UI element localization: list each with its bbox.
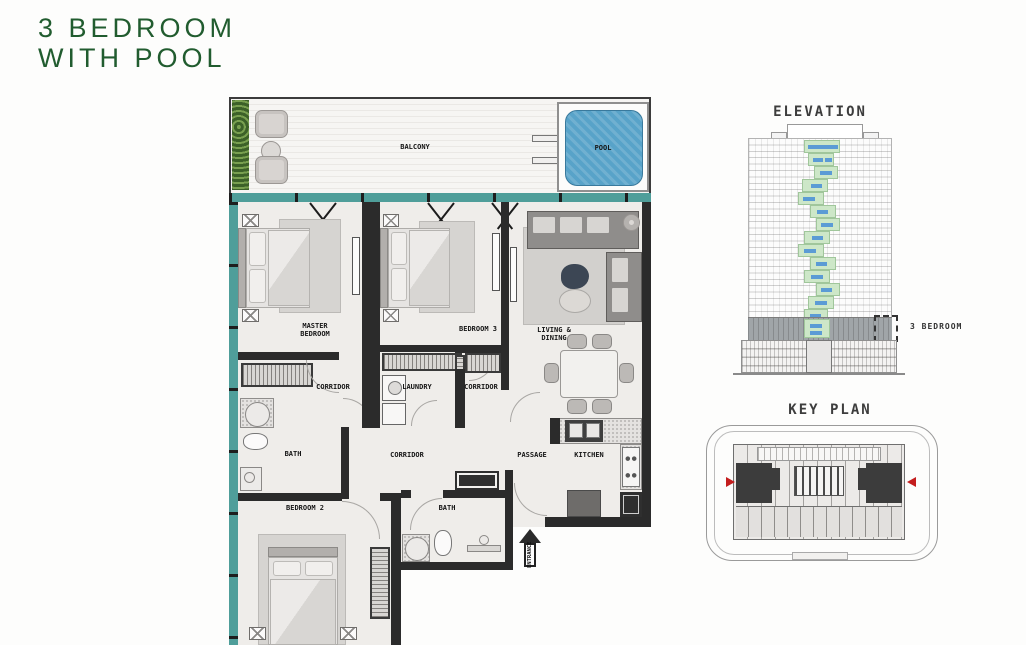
dining-chair — [619, 363, 634, 383]
wall — [545, 517, 651, 527]
key-plan-unit-highlight — [866, 463, 902, 503]
room-label-balcony: BALCONY — [400, 143, 430, 151]
sliding-panel — [510, 247, 517, 302]
elevation-highlight — [808, 153, 834, 166]
elevation-highlight — [798, 244, 824, 257]
elevation-highlight — [816, 218, 840, 231]
nightstand — [249, 627, 266, 640]
exterior — [401, 570, 513, 645]
room-label-corridor-main: CORRIDOR — [390, 451, 424, 459]
key-plan-section: KEY PLAN — [690, 400, 1026, 580]
duvet — [409, 230, 450, 306]
key-plan-entry-tab — [792, 552, 848, 560]
elevation-highlight — [810, 205, 836, 218]
elevation-callout-label: 3 BEDROOM — [910, 322, 962, 331]
wall — [443, 490, 505, 498]
elevation-highlight — [804, 231, 830, 244]
elevation-highlight — [798, 192, 824, 205]
entrance-label: ENTRANCE — [526, 545, 534, 565]
room-label-bath2: BATH — [439, 504, 456, 512]
key-plan-unit-highlight — [736, 463, 772, 503]
glass-wall-left — [229, 202, 238, 645]
key-plan-unit-highlight — [858, 468, 866, 490]
room-label-kitchen: KITCHEN — [574, 451, 604, 459]
toilet — [434, 530, 452, 556]
wall — [505, 470, 513, 570]
nightstand — [383, 214, 399, 227]
dining-chair — [544, 363, 559, 383]
floor-plan: BALCONY POOL — [229, 97, 651, 645]
page-title-line2: WITH POOL — [38, 43, 236, 73]
elevation-highlight — [810, 257, 836, 270]
floor-lamp — [623, 214, 640, 231]
wall — [642, 202, 651, 527]
elevation-highlight — [804, 140, 840, 153]
room-label-pool: POOL — [595, 144, 612, 152]
master-bed-headboard — [238, 228, 246, 308]
wall — [391, 562, 513, 570]
entry-console — [567, 490, 601, 517]
wall — [550, 418, 560, 444]
balcony-chair — [255, 156, 288, 184]
entrance-arrow-stem: ENTRANCE — [524, 543, 536, 567]
wardrobe — [465, 353, 501, 373]
sofa-cushion — [611, 287, 629, 313]
fridge — [620, 492, 642, 517]
elevation-callout-box — [874, 315, 898, 342]
room-label-corridor-right: CORRIDOR — [464, 383, 498, 391]
room-label-bedroom2: BEDROOM 2 — [286, 504, 324, 512]
key-plan-core — [794, 466, 844, 496]
pillow — [305, 561, 333, 576]
wall — [238, 493, 342, 501]
sofa-cushion — [559, 216, 583, 234]
room-label-bath-master: BATH — [285, 450, 302, 458]
duvet — [268, 230, 310, 306]
stove — [622, 447, 640, 487]
wall — [362, 202, 380, 428]
page-title-line1: 3 BEDROOM — [38, 13, 236, 43]
elevation-highlight — [816, 283, 840, 296]
pillow — [249, 269, 266, 303]
dining-table — [560, 350, 618, 398]
wall — [341, 427, 349, 499]
balcony-chair — [255, 110, 288, 138]
key-plan-unit-row — [736, 506, 902, 537]
dining-chair — [592, 399, 612, 414]
elevation-section: ELEVATION 3 BEDROOM — [700, 100, 1026, 390]
wall — [455, 369, 465, 428]
bedroom2-bed-headboard — [268, 547, 338, 557]
room-label-master-line1: MASTER — [300, 322, 330, 330]
wardrobe — [370, 547, 390, 619]
wardrobe — [241, 363, 313, 387]
pillow — [273, 561, 301, 576]
pillow — [249, 232, 266, 266]
unit-marker-icon — [907, 477, 916, 487]
dining-chair — [592, 334, 612, 349]
ottoman — [559, 289, 591, 313]
room-label-living-dining: LIVING & DINING — [537, 326, 571, 342]
shower-head — [244, 472, 255, 483]
nightstand — [383, 309, 399, 322]
elevation-podium-core — [806, 340, 832, 373]
nightstand — [242, 214, 259, 227]
room-label-corridor-left: CORRIDOR — [316, 383, 350, 391]
sofa-cushion — [611, 257, 629, 283]
elevation-highlight — [804, 319, 830, 338]
wall — [380, 345, 465, 352]
wall — [501, 202, 509, 390]
washer-drum — [388, 381, 402, 395]
service-shaft — [455, 471, 499, 490]
elevation-highlight — [814, 166, 838, 179]
page: 3 BEDROOM WITH POOL BALCONY POOL — [0, 0, 1026, 645]
elevation-highlight — [808, 296, 834, 309]
laundry-counter — [382, 403, 406, 425]
pillow — [391, 268, 407, 301]
room-label-living-line2: DINING — [537, 334, 571, 342]
bath-sink — [405, 537, 429, 561]
wall — [238, 352, 339, 360]
master-tv-panel — [352, 237, 360, 295]
room-label-master-line2: BEDROOM — [300, 330, 330, 338]
pillow — [391, 232, 407, 265]
key-plan-unit-highlight — [772, 468, 780, 490]
room-label-laundry: LAUNDRY — [402, 383, 432, 391]
duvet — [270, 579, 336, 645]
elevation-highlight — [804, 270, 830, 283]
dining-chair — [567, 399, 587, 414]
room-label-master: MASTER BEDROOM — [300, 322, 330, 338]
key-plan-amenity-strip — [757, 447, 881, 461]
laundry-cabinet — [382, 353, 462, 371]
shower-head — [479, 535, 489, 545]
nightstand — [242, 309, 259, 322]
glass-wall-top — [229, 193, 651, 202]
room-label-living-line1: LIVING & — [537, 326, 571, 334]
toilet — [243, 433, 268, 450]
elevation-highlight — [802, 179, 828, 192]
bedroom3-bed-headboard — [380, 228, 388, 308]
unit-marker-icon — [726, 477, 735, 487]
room-label-bedroom3: BEDROOM 3 — [459, 325, 497, 333]
sofa-cushion — [532, 216, 556, 234]
shower-rail — [467, 545, 501, 552]
sink-basin — [569, 423, 583, 438]
balcony-plants — [232, 100, 249, 190]
page-title: 3 BEDROOM WITH POOL — [38, 13, 236, 73]
bath-sink — [245, 402, 270, 427]
elevation-title: ELEVATION — [740, 104, 900, 120]
nightstand — [340, 627, 357, 640]
elevation-ground-line — [733, 373, 905, 375]
sofa-cushion — [586, 216, 610, 234]
room-label-passage: PASSAGE — [517, 451, 547, 459]
sliding-panel — [492, 233, 500, 291]
key-plan-title: KEY PLAN — [750, 402, 910, 418]
sink-basin — [586, 423, 600, 438]
wall — [401, 490, 411, 498]
